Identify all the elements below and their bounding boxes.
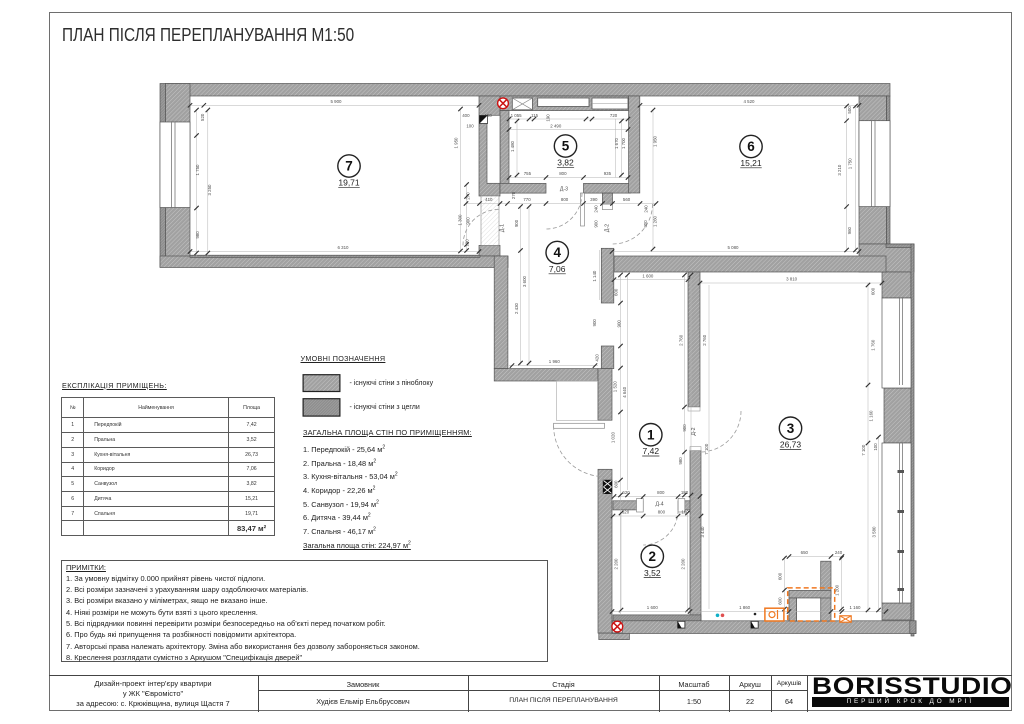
svg-text:3 440: 3 440 [700,526,705,538]
svg-text:1 300: 1 300 [458,214,463,226]
svg-text:3: 3 [787,421,795,436]
svg-text:5 080: 5 080 [728,245,740,250]
svg-text:650: 650 [801,550,809,555]
svg-text:900: 900 [594,220,599,228]
svg-text:755: 755 [524,171,532,176]
svg-text:1 160: 1 160 [869,410,874,422]
svg-text:270: 270 [511,191,516,199]
svg-text:Д-1: Д-1 [499,224,505,232]
svg-text:1 860: 1 860 [739,605,751,610]
svg-text:4 640: 4 640 [622,386,627,398]
svg-text:1 700: 1 700 [621,137,626,149]
svg-text:500: 500 [847,106,852,114]
svg-text:Д-2: Д-2 [691,427,697,435]
svg-text:26,73: 26,73 [780,440,802,450]
svg-text:620: 620 [622,510,630,515]
svg-text:2 200: 2 200 [614,558,619,570]
svg-text:935: 935 [604,171,612,176]
svg-text:Д-4: Д-4 [656,502,664,508]
svg-text:600: 600 [871,287,876,295]
svg-text:7,42: 7,42 [643,446,660,456]
svg-text:3 810: 3 810 [786,276,798,281]
svg-text:560: 560 [623,197,631,202]
svg-text:1 960: 1 960 [549,359,561,364]
svg-text:1 520: 1 520 [613,381,618,393]
svg-text:4: 4 [553,245,561,260]
svg-text:2 760: 2 760 [679,334,684,346]
svg-text:800: 800 [657,490,665,495]
svg-text:5: 5 [562,139,570,154]
svg-text:800: 800 [561,197,569,202]
svg-text:7 100: 7 100 [704,443,709,455]
svg-text:900: 900 [514,219,519,227]
svg-text:6 310: 6 310 [338,245,350,250]
svg-text:390: 390 [590,197,598,202]
svg-text:1 055: 1 055 [511,113,523,118]
svg-text:3 600: 3 600 [522,275,527,287]
svg-text:115: 115 [531,113,539,118]
svg-text:3 580: 3 580 [871,526,876,538]
svg-text:900: 900 [616,320,621,328]
svg-text:800: 800 [658,510,666,515]
svg-text:1 760: 1 760 [871,339,876,351]
svg-text:900: 900 [592,319,597,327]
svg-text:7: 7 [345,159,353,174]
svg-text:1 020: 1 020 [611,432,616,444]
svg-text:900: 900 [682,424,687,432]
svg-text:Д-2: Д-2 [605,224,611,232]
svg-text:1 750: 1 750 [848,158,853,170]
svg-text:1 950: 1 950 [653,135,658,147]
svg-text:900: 900 [466,217,471,225]
svg-text:2 490: 2 490 [550,123,562,128]
svg-text:3 250: 3 250 [207,184,212,196]
svg-text:1 480: 1 480 [510,140,515,152]
svg-text:600: 600 [613,480,618,488]
svg-text:1 160: 1 160 [850,605,862,610]
svg-text:100: 100 [466,123,474,128]
svg-text:520: 520 [200,113,205,121]
svg-text:410: 410 [485,197,493,202]
svg-text:600: 600 [777,597,782,605]
svg-text:240: 240 [594,205,599,213]
svg-text:19,71: 19,71 [338,178,360,188]
svg-text:1 950: 1 950 [454,137,459,149]
svg-text:100: 100 [873,443,878,451]
svg-text:2 760: 2 760 [702,334,707,346]
svg-text:2: 2 [649,549,657,564]
svg-text:7 100: 7 100 [861,444,866,456]
svg-text:1 670: 1 670 [614,137,619,149]
svg-text:420: 420 [595,354,600,362]
svg-text:980: 980 [195,231,200,239]
svg-text:960: 960 [847,226,852,234]
svg-text:1: 1 [647,427,655,442]
svg-text:3,82: 3,82 [557,158,574,168]
svg-text:5 900: 5 900 [331,99,343,104]
svg-text:1 140: 1 140 [592,270,597,282]
svg-text:7,06: 7,06 [549,264,566,274]
svg-text:1 600: 1 600 [647,605,659,610]
svg-text:2 200: 2 200 [680,558,685,570]
svg-text:3,52: 3,52 [644,568,661,578]
svg-text:15,21: 15,21 [740,158,762,168]
svg-text:900: 900 [643,220,648,228]
svg-text:2 430: 2 430 [514,302,519,314]
svg-text:240: 240 [643,205,648,213]
svg-text:270: 270 [466,192,471,200]
svg-text:980: 980 [678,457,683,465]
svg-text:600: 600 [613,288,618,296]
svg-text:1 750: 1 750 [195,164,200,176]
svg-text:620: 620 [622,490,630,495]
svg-text:190: 190 [546,114,551,122]
svg-text:400: 400 [462,113,470,118]
svg-text:240: 240 [835,550,843,555]
svg-text:1 600: 1 600 [642,273,654,278]
svg-text:Д-3: Д-3 [560,186,568,192]
svg-text:3 210: 3 210 [837,164,842,176]
svg-text:600: 600 [777,572,782,580]
svg-text:720: 720 [610,113,618,118]
svg-text:800: 800 [559,171,567,176]
svg-text:770: 770 [523,197,531,202]
svg-text:4 520: 4 520 [744,99,756,104]
svg-text:6: 6 [747,139,755,154]
